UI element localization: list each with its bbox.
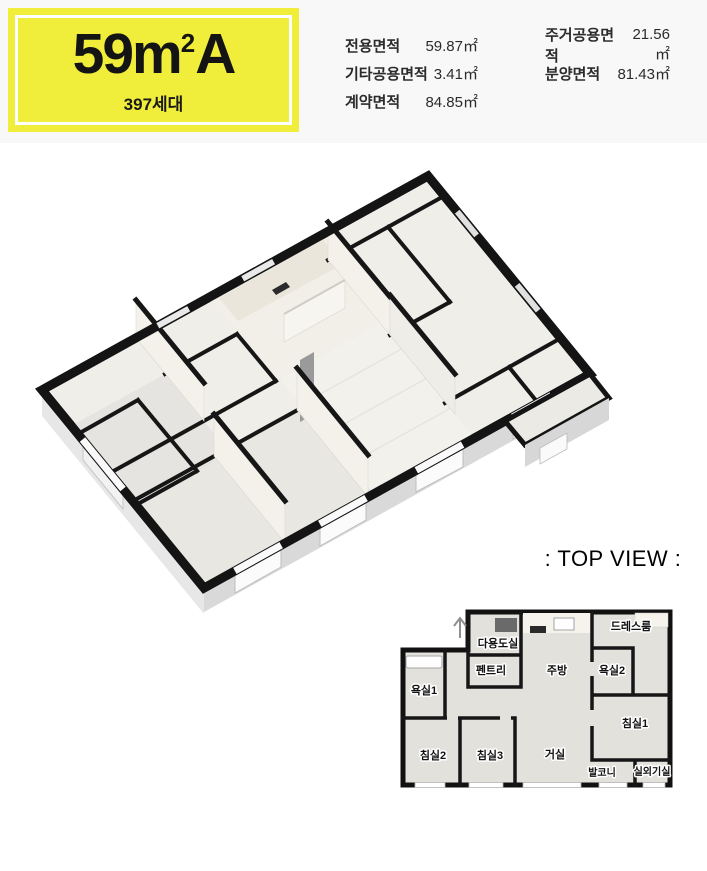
top-view-caption: : TOP VIEW : [538,546,688,572]
room-label-pantry: 펜트리 [476,663,506,677]
room-label-balcony: 발코니 [588,766,616,779]
sink [554,618,574,630]
room-label-dressroom: 드레스룸 [611,619,651,633]
room-label-bed3: 침실3 [477,748,503,762]
room-label-bed1: 침실1 [622,716,648,730]
room-label-utility: 다용도실 [478,636,518,650]
floor-plan-3d [42,176,609,614]
room-label-bed2: 침실2 [420,748,446,762]
room-label-bath2: 욕실2 [599,663,625,677]
bathtub [406,656,442,668]
plan-canvas: 다용도실 드레스룸 펜트리 주방 욕실2 욕실1 침실1 침실2 침실3 거실 … [0,0,707,871]
floor-plan-top-view: 다용도실 드레스룸 펜트리 주방 욕실2 욕실1 침실1 침실2 침실3 거실 … [403,612,670,788]
entrance-arrow-icon [454,618,466,638]
room-label-bath1: 욕실1 [411,683,437,697]
washer [495,618,517,632]
unit-type-page: 59m2A 397세대 전용면적 59.87㎡ 기타공용면적 3.41㎡ 계약면… [0,0,707,871]
room-label-kitchen: 주방 [547,663,567,677]
stove [530,626,546,633]
room-label-living: 거실 [545,747,565,761]
room-label-ac-room: 실외기실 [634,765,671,778]
